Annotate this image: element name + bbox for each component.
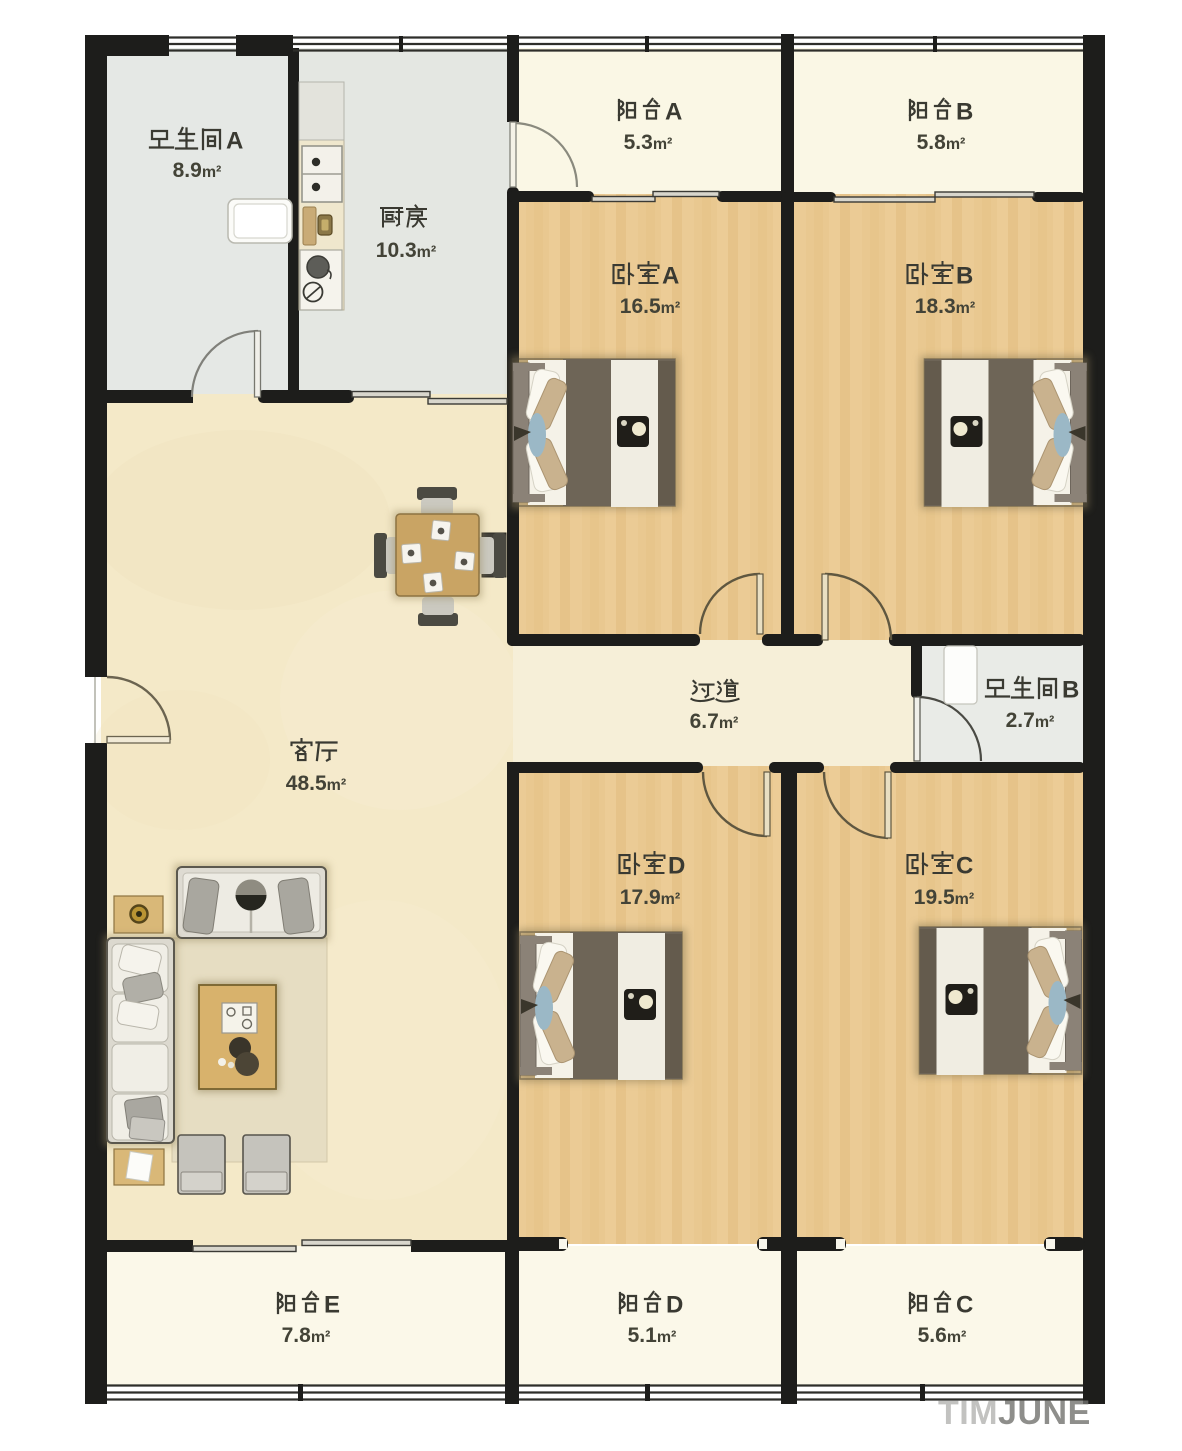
svg-text:A: A (665, 99, 682, 126)
svg-text:D: D (668, 853, 685, 880)
svg-text:A: A (662, 263, 679, 290)
svg-text:E: E (324, 1292, 340, 1319)
svg-text:B: B (956, 99, 973, 126)
svg-text:D: D (666, 1292, 683, 1319)
svg-text:C: C (956, 853, 973, 880)
svg-text:B: B (1062, 677, 1079, 704)
svg-text:C: C (956, 1292, 973, 1319)
svg-text:A: A (226, 128, 243, 155)
svg-text:TIMJUNE: TIMJUNE (938, 1394, 1091, 1432)
svg-text:B: B (956, 263, 973, 290)
